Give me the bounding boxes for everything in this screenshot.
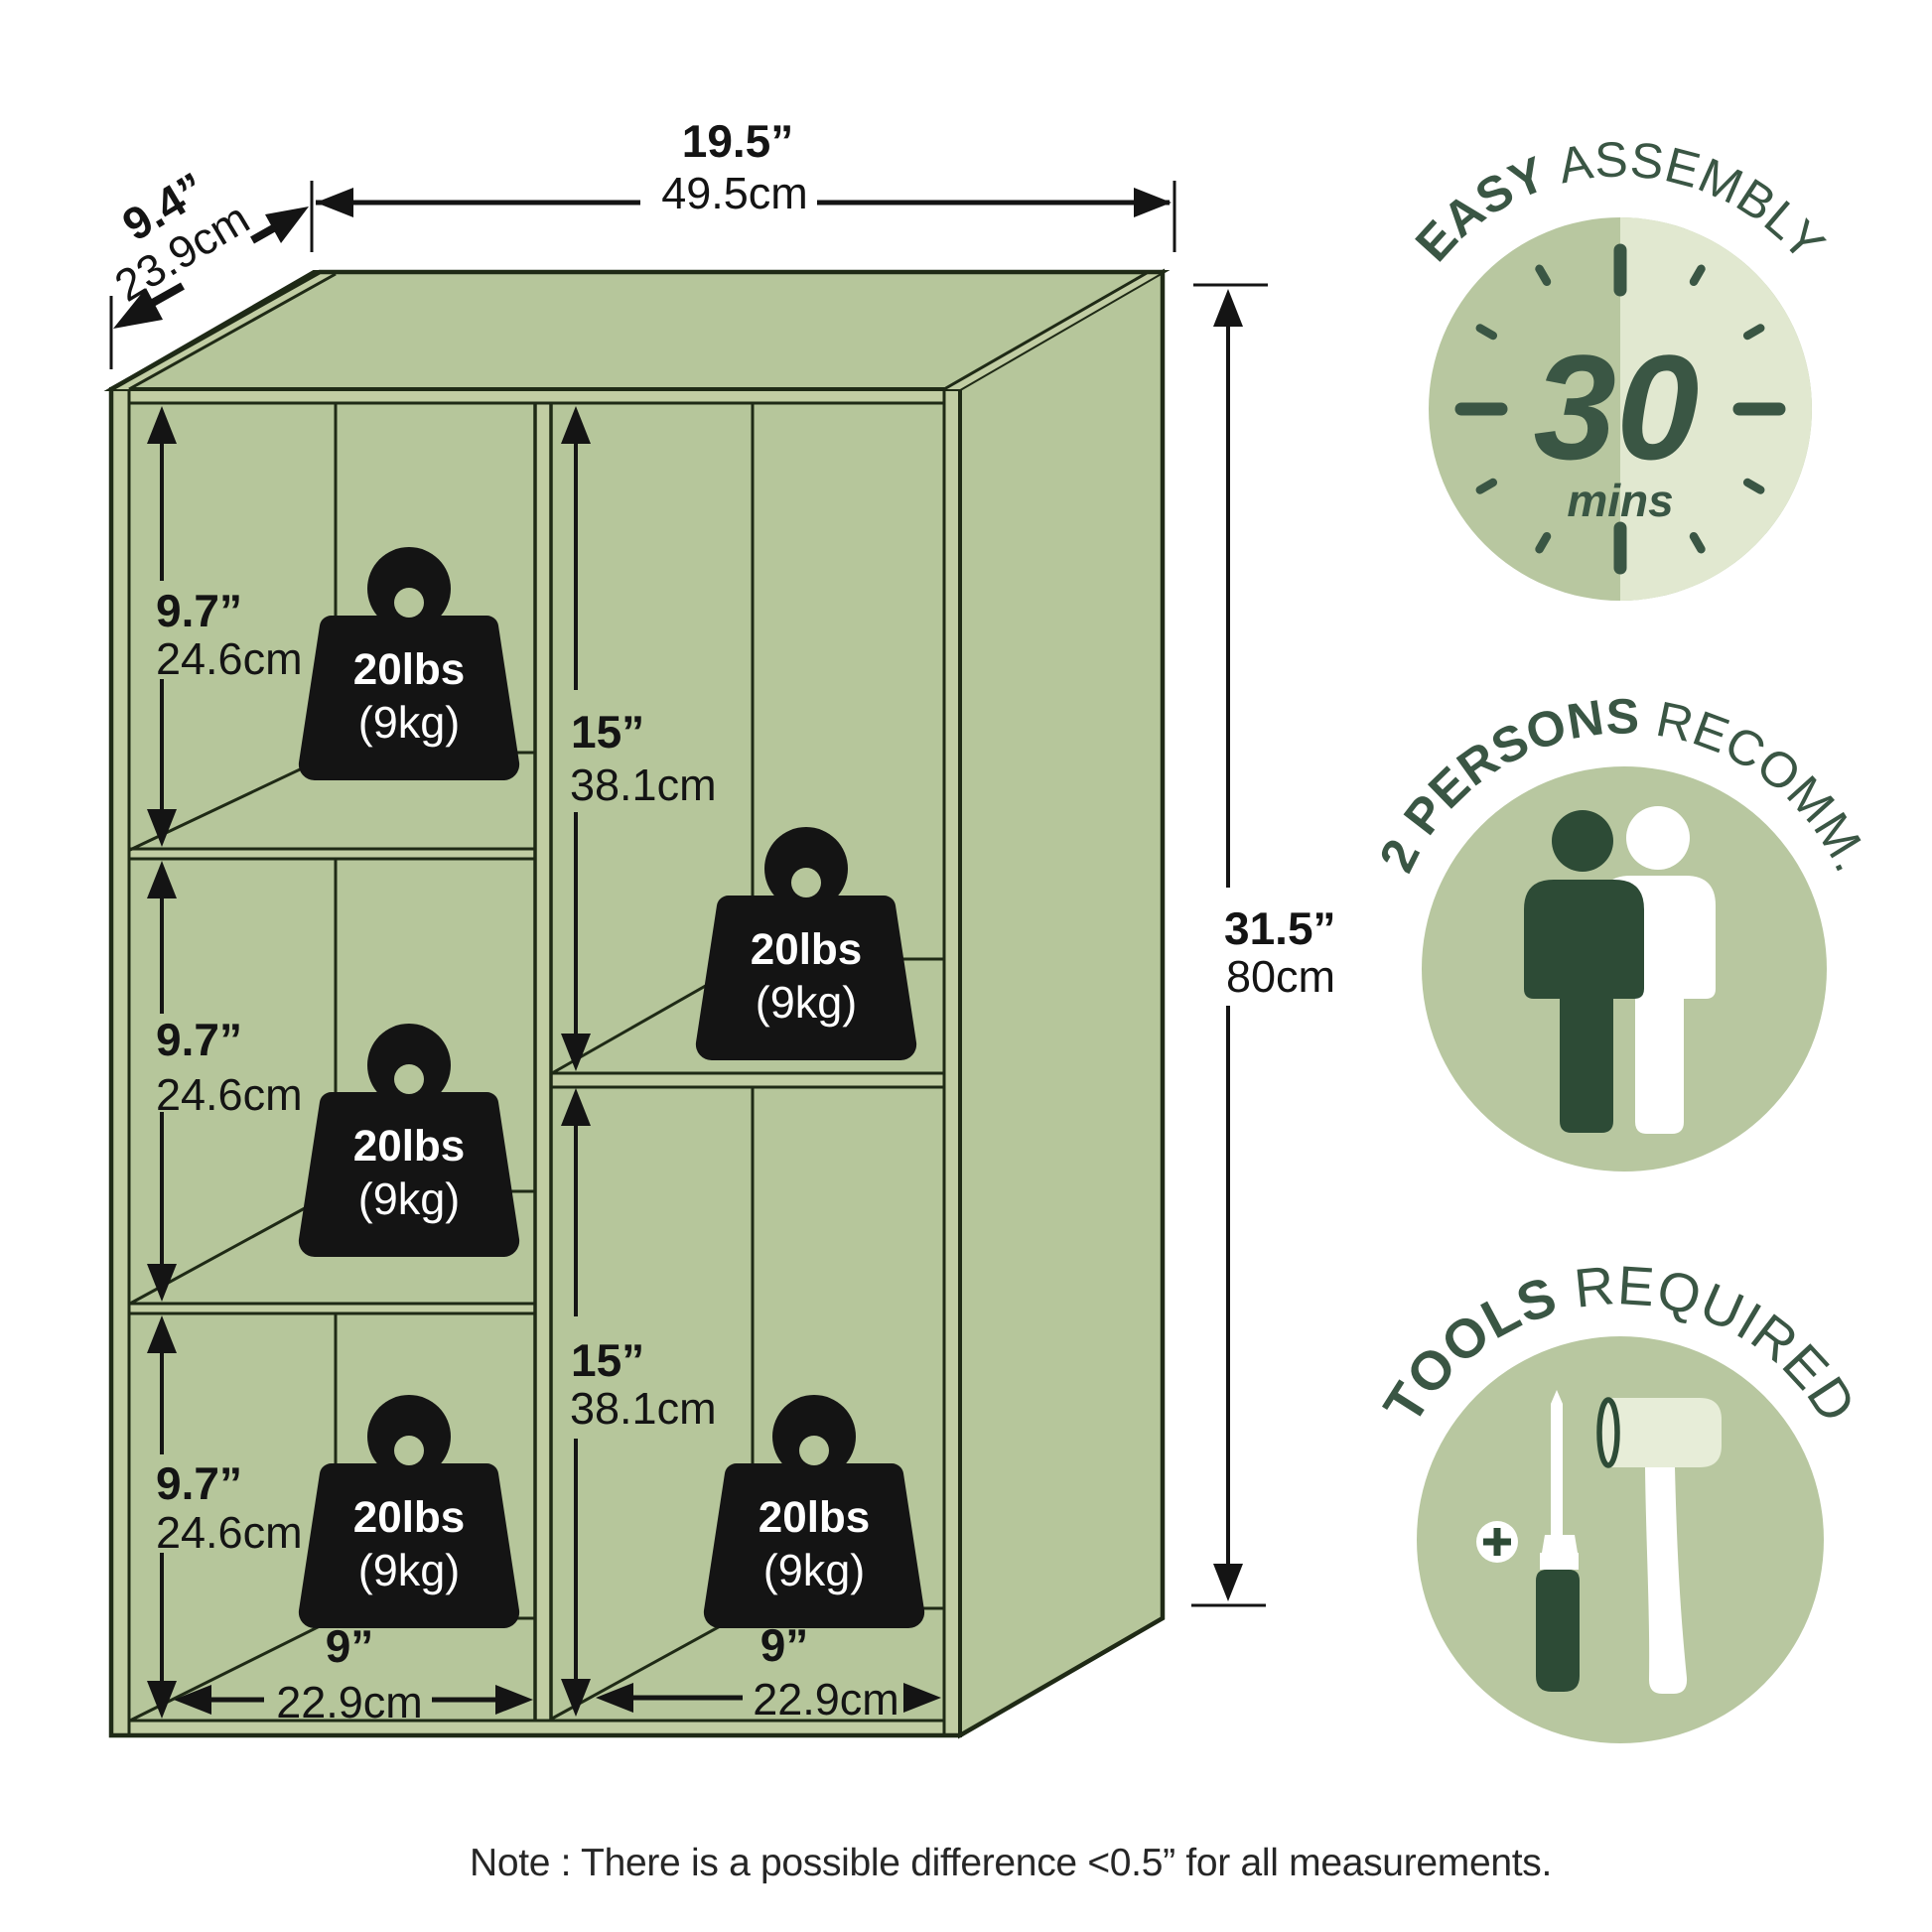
svg-text:9”: 9” [326,1620,374,1672]
svg-text:mins: mins [1567,475,1673,526]
svg-text:24.6cm: 24.6cm [156,1069,303,1120]
svg-text:24.6cm: 24.6cm [156,1507,303,1558]
svg-text:22.9cm: 22.9cm [753,1674,899,1725]
svg-text:19.5”: 19.5” [682,115,794,167]
svg-text:15”: 15” [571,706,644,758]
svg-text:9.7”: 9.7” [156,1014,242,1065]
svg-text:22.9cm: 22.9cm [276,1677,423,1727]
svg-text:38.1cm: 38.1cm [570,1383,717,1434]
svg-text:9.7”: 9.7” [156,585,242,636]
svg-text:24.6cm: 24.6cm [156,633,303,684]
svg-text:9.7”: 9.7” [156,1457,242,1509]
svg-text:80cm: 80cm [1226,951,1335,1002]
svg-text:38.1cm: 38.1cm [570,759,717,810]
svg-text:31.5”: 31.5” [1224,902,1336,954]
svg-text:49.5cm: 49.5cm [661,168,808,218]
svg-text:15”: 15” [571,1334,644,1386]
svg-text:9”: 9” [760,1619,809,1671]
svg-text:30: 30 [1534,324,1700,490]
svg-text:Note : There is a possible dif: Note : There is a possible difference <0… [470,1842,1552,1884]
